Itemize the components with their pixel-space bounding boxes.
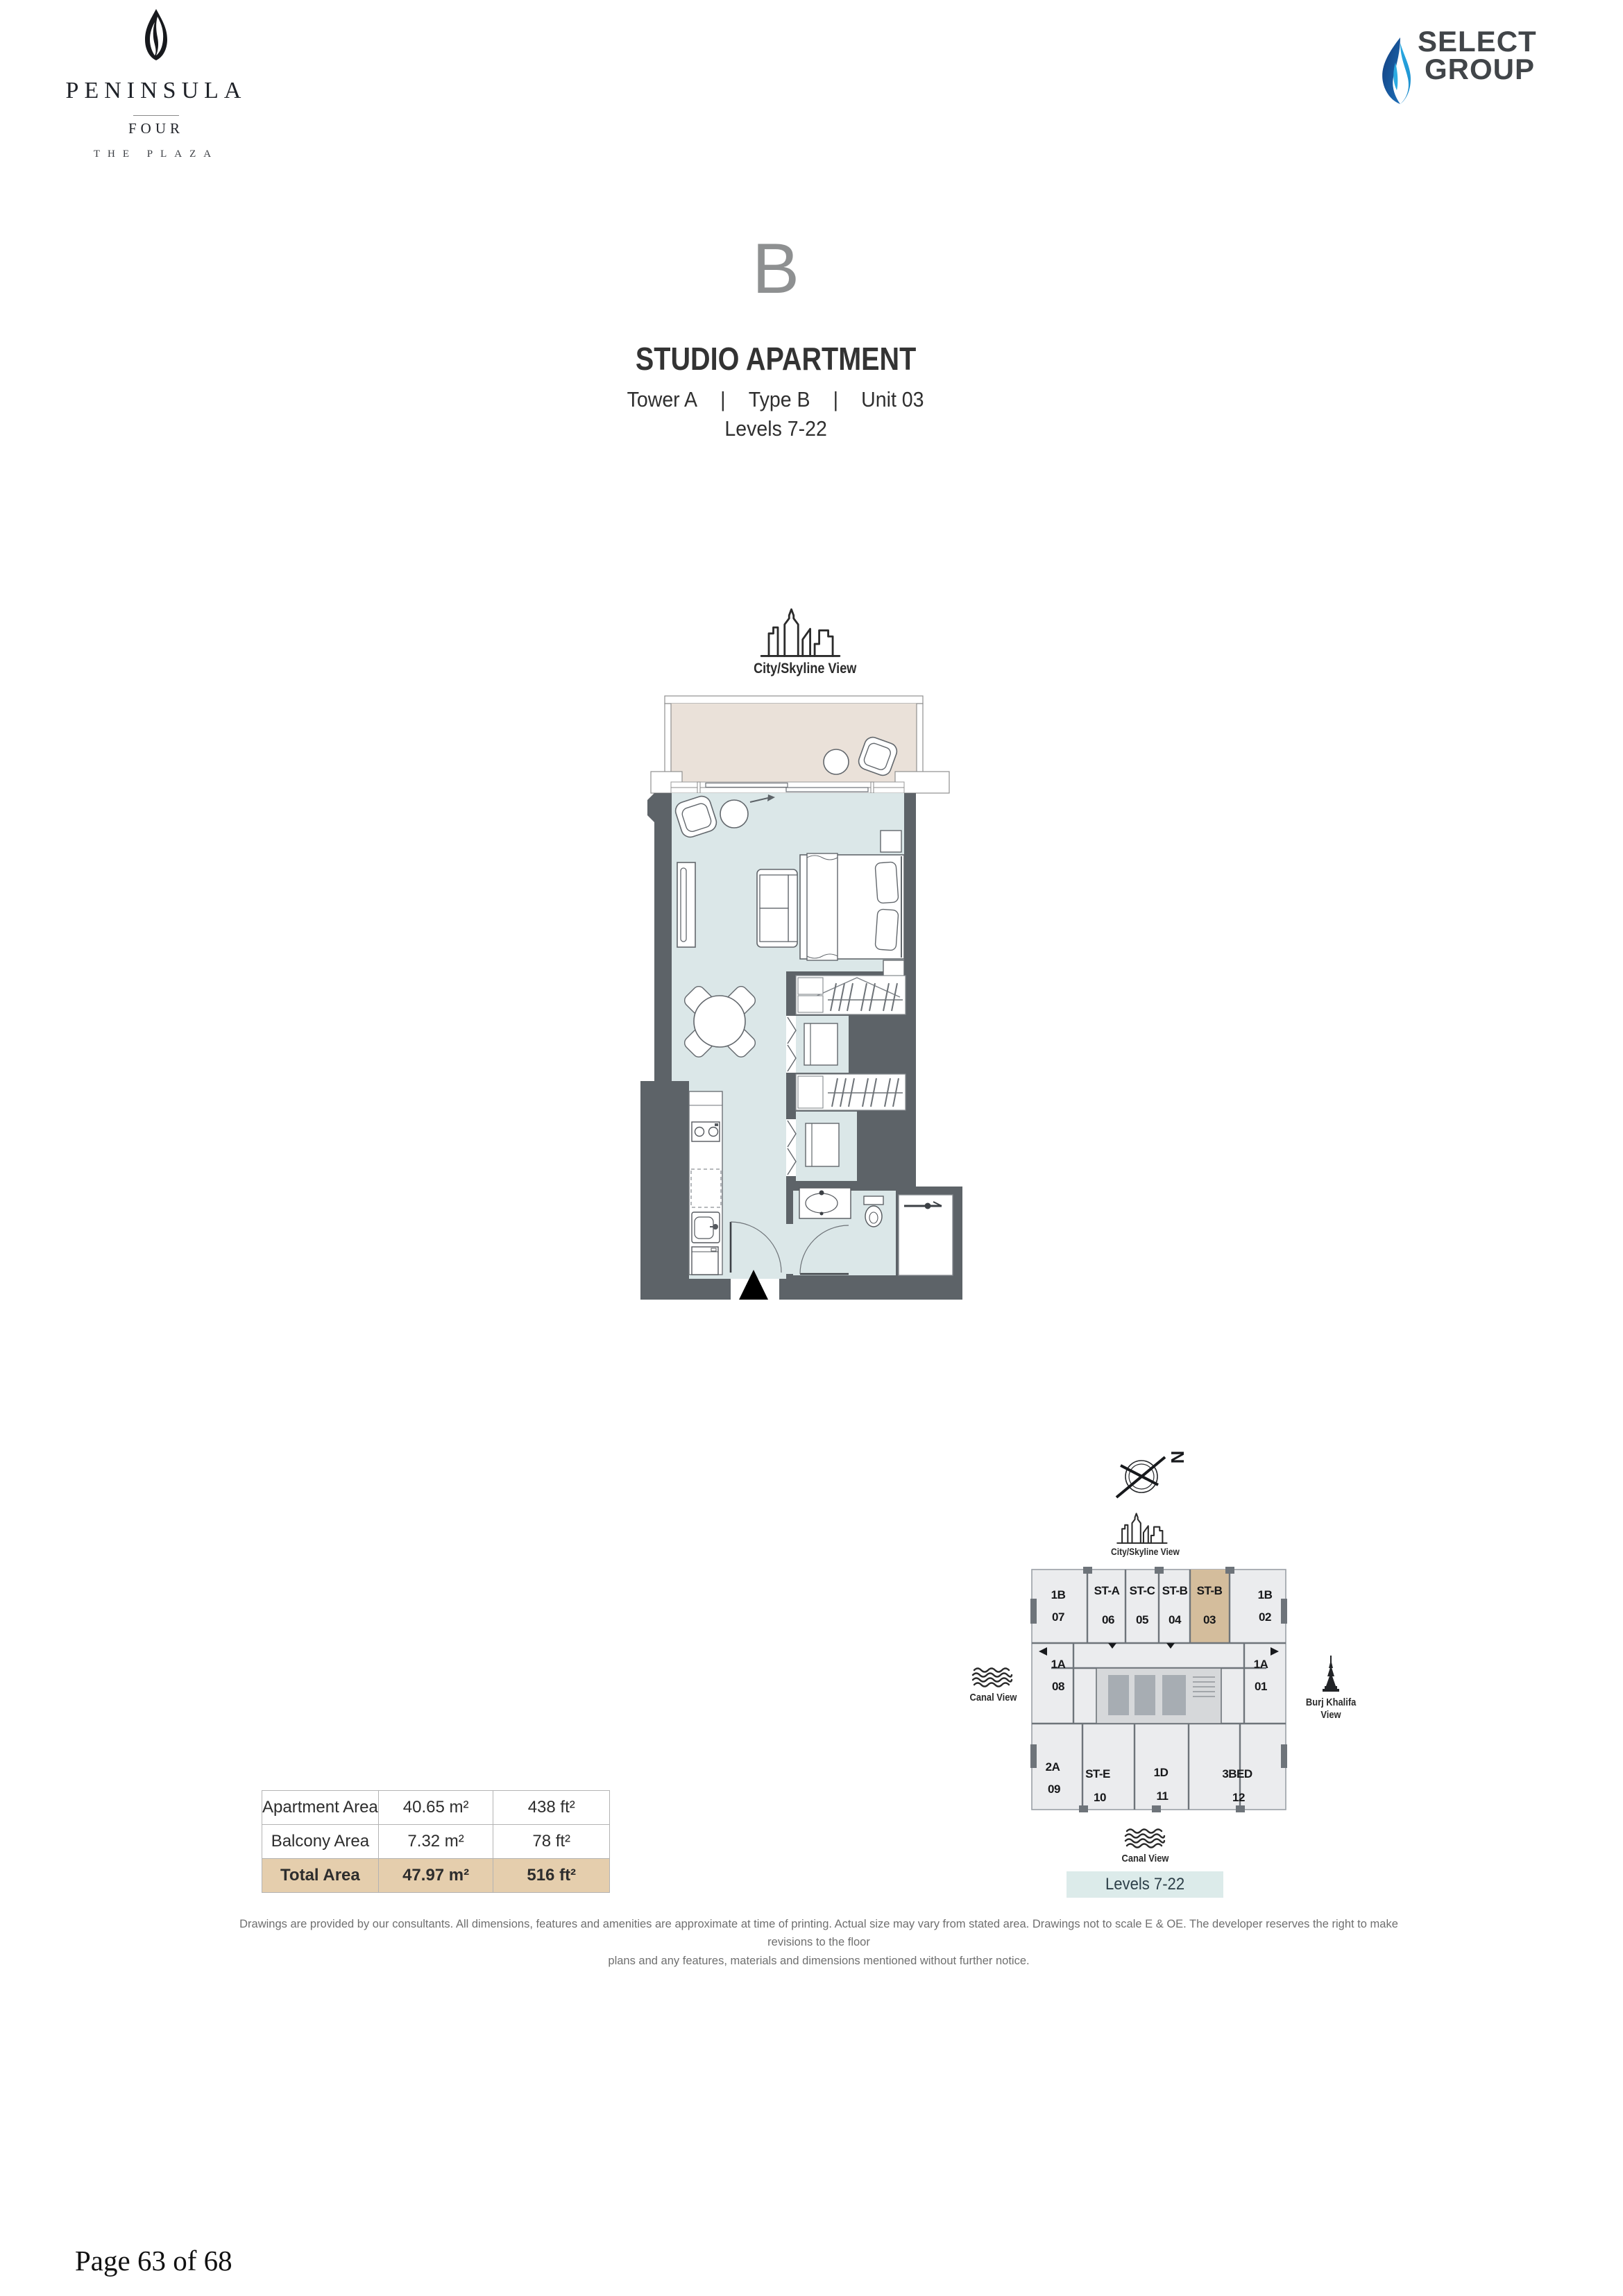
city-view-label: City/Skyline View [754,661,856,677]
brand-plaza: THE PLAZA [59,148,253,160]
keyplan-unit-label: 1A [1254,1658,1268,1671]
keyplan-highlight-unit-03 [1190,1570,1230,1643]
keyplan-city-view-block: City/Skyline View [1091,1513,1199,1557]
keyplan-unit-label: ST-C [1130,1584,1155,1597]
keyplan-unit-label: ST-B [1197,1584,1223,1597]
keyplan-unit-number: 02 [1259,1610,1271,1624]
area-imperial: 438 ft² [493,1791,610,1825]
area-metric: 7.32 m² [378,1825,493,1859]
toilet [864,1196,883,1227]
kitchen [689,1091,722,1275]
keyplan-unit-label: 3BED [1222,1767,1252,1780]
wardrobe [796,1074,906,1110]
unit-levels: Levels 7-22 [724,416,826,441]
balcony-table [824,749,849,774]
burj-khalifa-icon [1322,1656,1340,1694]
keyplan-unit-number: 09 [1048,1783,1060,1796]
unit-type: Type B [749,387,810,411]
area-imperial: 516 ft² [493,1859,610,1893]
table-row: Balcony Area 7.32 m² 78 ft² [262,1825,610,1859]
peninsula-logo: PENINSULA FOUR THE PLAZA [59,8,253,160]
burj-view-label-line1: Burj Khalifa [1306,1697,1356,1709]
keyplan-unit-number: 04 [1169,1613,1182,1626]
kitchen-sink [692,1212,720,1243]
burj-khalifa-view: Burj Khalifa View [1289,1656,1373,1721]
area-label: Total Area [262,1859,379,1893]
keyplan-unit-number: 11 [1157,1789,1169,1803]
city-skyline-icon [760,608,850,661]
bathroom [786,1188,953,1275]
canal-waves-icon [971,1667,1014,1690]
keyplan-unit-label: ST-B [1162,1584,1188,1597]
keyplan-unit-label: 2A [1046,1760,1060,1774]
city-skyline-icon [1112,1513,1178,1546]
separator: | [721,387,726,411]
city-view-label: City/Skyline View [1111,1546,1180,1557]
canal-view-left: Canal View [951,1667,1035,1704]
closet [786,1112,857,1181]
burj-view-label-line2: View [1320,1709,1341,1721]
developer-name-line2: GROUP [1425,56,1537,83]
keyplan-unit-label: 1B [1258,1588,1273,1601]
keyplan-unit-number: 05 [1136,1613,1148,1626]
brand-four: FOUR [59,120,253,137]
keyplan-unit-number: 03 [1203,1613,1216,1626]
title-block: B STUDIO APARTMENT Tower A|Type B|Unit 0… [359,233,1192,441]
compass-north-label: N [1167,1451,1188,1464]
keyplan-core [1096,1668,1221,1724]
separator: | [833,387,838,411]
levels-badge-text: Levels 7-22 [1105,1875,1184,1894]
area-metric: 47.97 m² [378,1859,493,1893]
ottoman [720,800,748,828]
brand-name: PENINSULA [59,78,253,104]
keyplan-unit-number: 06 [1102,1613,1114,1626]
disclaimer-line2: plans and any features, materials and di… [222,1952,1416,1970]
bed [800,853,904,960]
flame-icon [1377,36,1412,105]
keyplan-unit-label: 1B [1051,1588,1066,1601]
unit-tower: Tower A [627,387,697,411]
unit-subtitle: Tower A|Type B|Unit 03 [627,387,924,412]
city-view-block: City/Skyline View [715,608,895,677]
keyplan-drawing: 1B 07 ST-A 06 ST-C 05 ST-B 04 ST-B 03 1B… [1030,1563,1287,1817]
area-label: Balcony Area [262,1825,379,1859]
floorplan-page: PENINSULA FOUR THE PLAZA SELECT GROUP [0,0,1623,2296]
keyplan-unit-number: 12 [1232,1791,1245,1804]
unit-type-letter: B [359,233,1192,304]
compass-icon: N [1107,1445,1190,1511]
tv-console [677,862,695,947]
canal-view-bottom: Canal View [1102,1828,1189,1865]
keyplan-unit-label: 1D [1154,1766,1169,1779]
area-imperial: 78 ft² [493,1825,610,1859]
canal-view-label: Canal View [1122,1853,1169,1865]
bathroom-sink [799,1188,851,1218]
disclaimer: Drawings are provided by our consultants… [222,1915,1416,1970]
peninsula-drop-icon [143,8,169,61]
brand-divider [133,115,179,116]
floorplan-drawing [628,683,982,1308]
canal-waves-icon [1124,1828,1167,1851]
sofa [757,869,797,947]
keyplan-unit-number: 07 [1052,1610,1064,1624]
keyplan-unit-label: ST-A [1094,1584,1120,1597]
page-title: STUDIO APARTMENT [636,340,916,377]
side-table [881,831,901,852]
keyplan-unit-number: 01 [1255,1680,1267,1693]
area-table: Apartment Area 40.65 m² 438 ft² Balcony … [262,1790,610,1893]
shower [899,1195,953,1275]
area-metric: 40.65 m² [378,1791,493,1825]
table-row: Apartment Area 40.65 m² 438 ft² [262,1791,610,1825]
area-label: Apartment Area [262,1791,379,1825]
levels-badge: Levels 7-22 [1067,1871,1223,1898]
keyplan-unit-number: 08 [1052,1680,1064,1693]
select-group-logo: SELECT GROUP [1377,28,1537,105]
disclaimer-line1: Drawings are provided by our consultants… [222,1915,1416,1952]
keyplan-unit-label: ST-E [1085,1767,1110,1780]
page-number: Page 63 of 68 [75,2244,232,2277]
balcony-edge [665,696,923,704]
keyplan-unit-label: 1A [1051,1658,1066,1671]
developer-name-line1: SELECT [1418,28,1537,56]
canal-view-label: Canal View [969,1692,1017,1704]
table-row-total: Total Area 47.97 m² 516 ft² [262,1859,610,1893]
keyplan-unit-number: 10 [1094,1791,1106,1804]
wardrobe [796,976,906,1014]
closet [786,1016,849,1073]
unit-number: Unit 03 [862,387,924,411]
